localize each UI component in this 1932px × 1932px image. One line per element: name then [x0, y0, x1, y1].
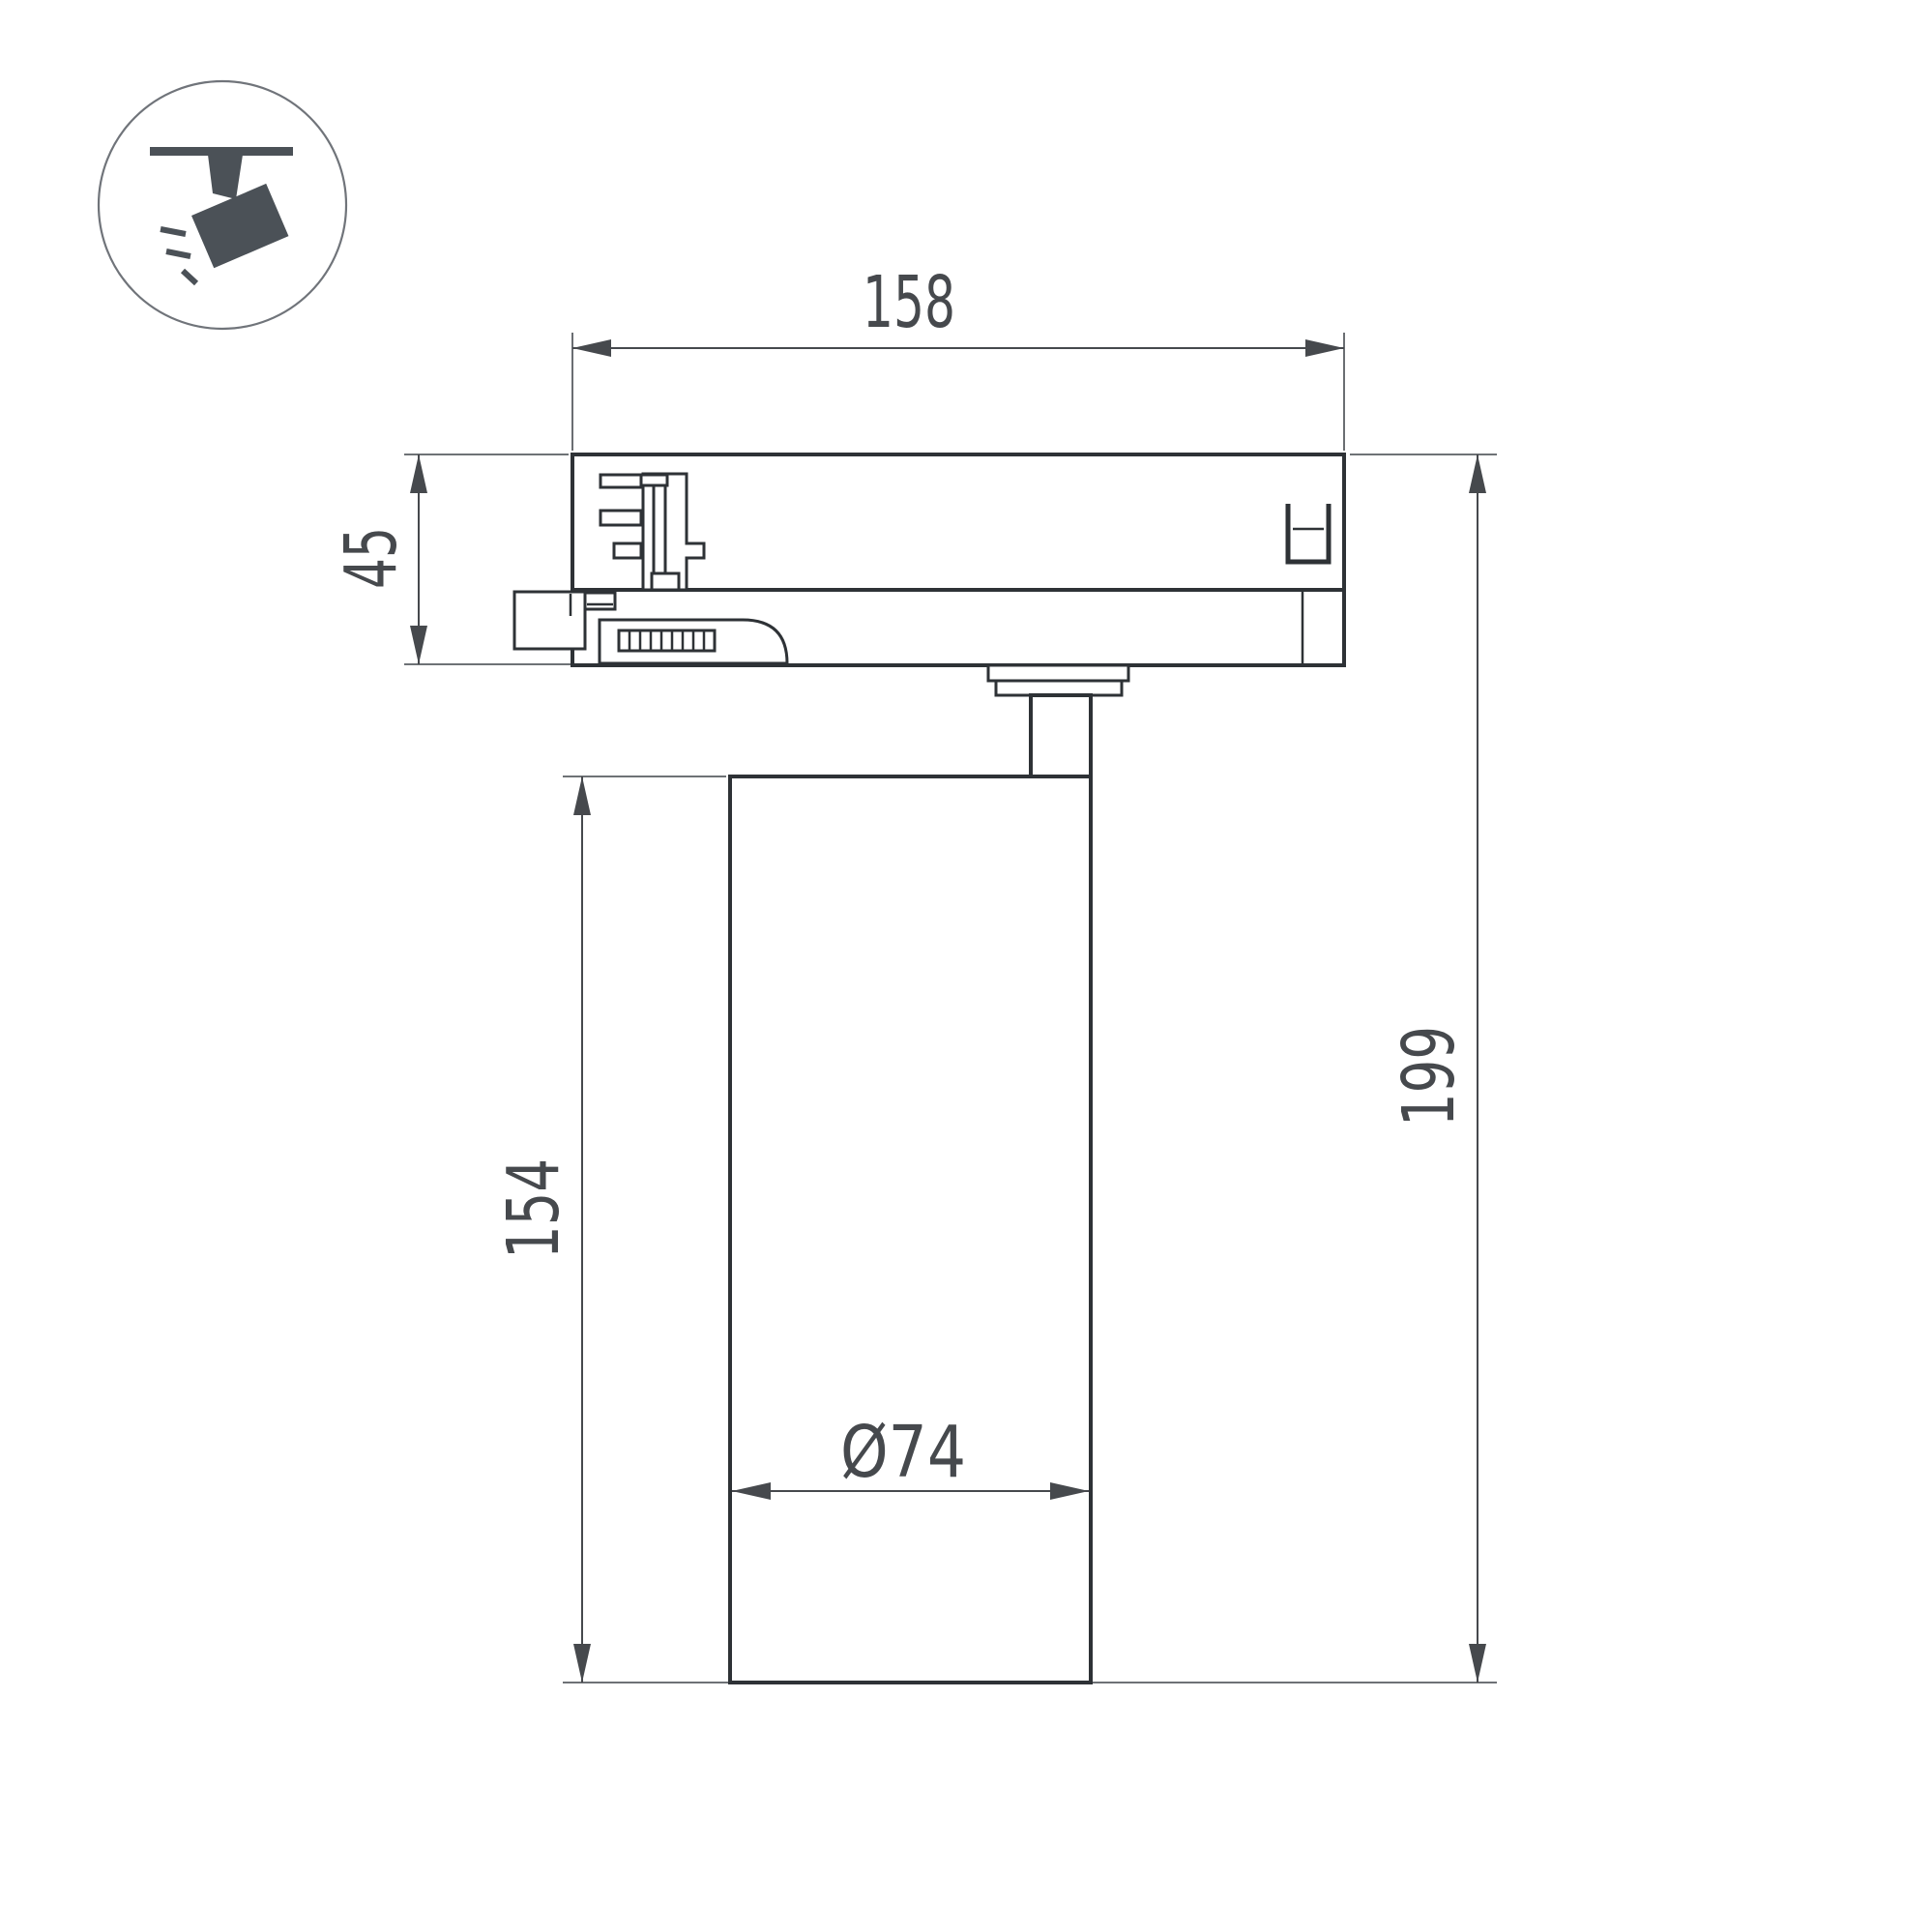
dimension-label-adapter-height: 45 — [330, 527, 413, 589]
contact-post-cap — [641, 475, 667, 485]
dim-arrow-45-top — [410, 454, 427, 493]
dim-arrow-158-right — [1305, 339, 1344, 357]
dim-arrow-154-bottom — [573, 1644, 591, 1683]
lamp-assembly — [730, 665, 1128, 1683]
pivot-step-lower — [996, 681, 1122, 695]
dim-arrow-45-bottom — [410, 626, 427, 664]
contact-post-foot — [652, 573, 679, 590]
latch-tab — [585, 593, 615, 609]
dim-arrow-158-left — [572, 339, 611, 357]
contact-pin-middle — [600, 511, 641, 525]
track-spotlight-icon — [99, 81, 346, 329]
pivot-step-upper — [988, 665, 1128, 681]
dimension-label-body-diameter: Ø74 — [840, 1411, 966, 1494]
locking-lever — [600, 620, 787, 663]
icon-ceiling-track — [150, 147, 293, 156]
dimension-label-total-height: 199 — [1388, 1026, 1471, 1127]
contact-pin-top — [600, 475, 643, 487]
adapter-upper-housing — [572, 454, 1344, 590]
latch-knob — [514, 592, 585, 649]
lever-grip — [619, 630, 715, 651]
lamp-cylinder-body — [730, 776, 1091, 1683]
dim-arrow-154-top — [573, 776, 591, 815]
dim-arrow-199-top — [1469, 454, 1486, 493]
contact-pin-bottom — [614, 543, 641, 558]
lamp-stem — [1031, 695, 1091, 777]
dim-arrow-199-bottom — [1469, 1644, 1486, 1683]
drawing-page: 158 45 154 199 Ø74 — [0, 0, 1932, 1932]
dimension-label-adapter-width: 158 — [863, 261, 955, 344]
technical-drawing-canvas: 158 45 154 199 Ø74 — [0, 0, 1932, 1932]
contact-post — [654, 485, 665, 573]
track-adapter — [514, 454, 1344, 665]
dimension-label-body-height: 154 — [492, 1158, 575, 1259]
